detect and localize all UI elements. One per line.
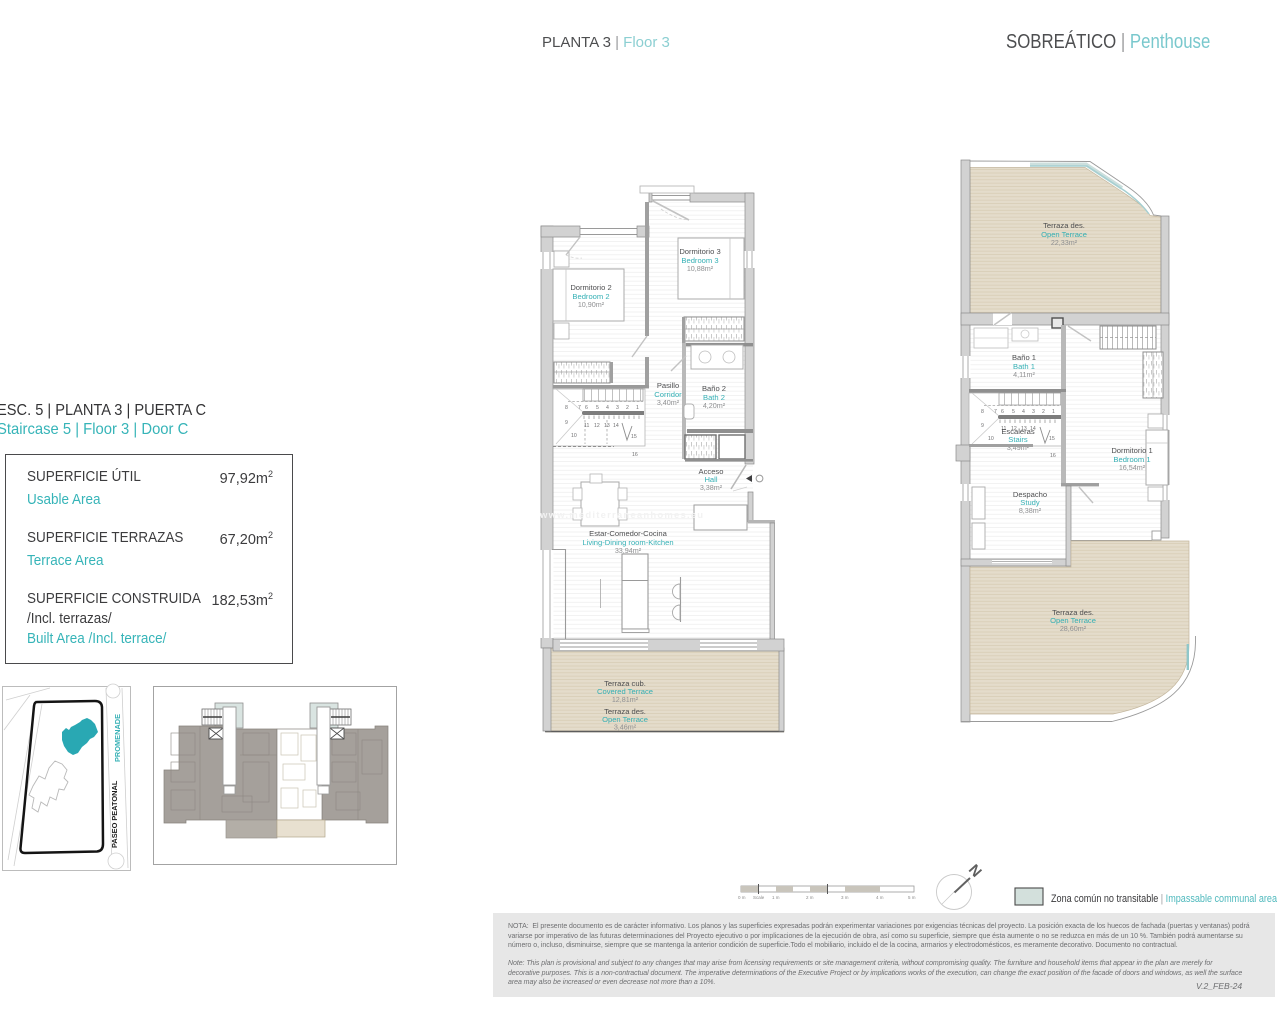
svg-text:3,38m²: 3,38m² bbox=[700, 483, 723, 492]
svg-text:5 m: 5 m bbox=[908, 895, 916, 900]
svg-text:6: 6 bbox=[1001, 409, 1004, 415]
svg-text:12: 12 bbox=[594, 423, 600, 429]
svg-text:15: 15 bbox=[631, 434, 637, 440]
svg-text:10,90m²: 10,90m² bbox=[578, 300, 605, 309]
svg-text:2 m: 2 m bbox=[806, 895, 814, 900]
svg-text:9: 9 bbox=[981, 423, 984, 429]
svg-text:14: 14 bbox=[613, 423, 619, 429]
svg-text:1: 1 bbox=[1052, 409, 1055, 415]
svg-text:PROMENADE: PROMENADE bbox=[113, 714, 122, 762]
svg-text:3 m: 3 m bbox=[841, 895, 849, 900]
svg-text:Baño 1: Baño 1 bbox=[1012, 353, 1036, 362]
svg-text:22,33m²: 22,33m² bbox=[1051, 238, 1078, 247]
svg-text:8,38m²: 8,38m² bbox=[1019, 506, 1042, 515]
svg-text:8: 8 bbox=[981, 409, 984, 415]
svg-text:16: 16 bbox=[632, 452, 638, 458]
svg-text:8: 8 bbox=[565, 405, 568, 411]
svg-text:2: 2 bbox=[1042, 409, 1045, 415]
svg-text:4,11m²: 4,11m² bbox=[1013, 370, 1035, 379]
svg-text:www.mediterraneanhomes.eu: www.mediterraneanhomes.eu bbox=[539, 510, 704, 521]
svg-text:10,88m²: 10,88m² bbox=[687, 264, 714, 273]
svg-text:3: 3 bbox=[616, 405, 619, 411]
svg-text:1 m: 1 m bbox=[772, 895, 780, 900]
svg-text:5: 5 bbox=[596, 405, 599, 411]
svg-text:4: 4 bbox=[606, 405, 609, 411]
svg-text:Scale: Scale bbox=[753, 895, 765, 900]
svg-text:4 m: 4 m bbox=[876, 895, 884, 900]
svg-text:Terraza des.: Terraza des. bbox=[1043, 221, 1085, 230]
svg-text:9: 9 bbox=[565, 420, 568, 426]
svg-text:11: 11 bbox=[584, 423, 589, 429]
svg-text:Estar-Comedor-Cocina: Estar-Comedor-Cocina bbox=[589, 529, 667, 538]
svg-text:16,54m²: 16,54m² bbox=[1119, 463, 1146, 472]
svg-text:Baño 2: Baño 2 bbox=[702, 384, 726, 393]
svg-text:PASEO PEATONAL: PASEO PEATONAL bbox=[110, 780, 119, 848]
svg-text:3,40m²: 3,40m² bbox=[657, 398, 680, 407]
svg-text:Dormitorio 3: Dormitorio 3 bbox=[679, 247, 720, 256]
svg-text:10: 10 bbox=[571, 433, 577, 439]
svg-text:3: 3 bbox=[1032, 409, 1035, 415]
svg-text:6: 6 bbox=[585, 405, 588, 411]
svg-text:1: 1 bbox=[636, 405, 639, 411]
svg-text:Dormitorio 2: Dormitorio 2 bbox=[570, 283, 611, 292]
svg-text:Zona común no transitable | Im: Zona común no transitable | Impassable c… bbox=[1051, 893, 1278, 905]
svg-text:28,60m²: 28,60m² bbox=[1060, 624, 1087, 633]
svg-text:N: N bbox=[965, 861, 985, 880]
svg-text:33,94m²: 33,94m² bbox=[615, 546, 642, 555]
svg-text:5: 5 bbox=[1012, 409, 1015, 415]
svg-text:Dormitorio 1: Dormitorio 1 bbox=[1111, 446, 1152, 455]
svg-text:16: 16 bbox=[1050, 453, 1056, 459]
svg-text:4,20m²: 4,20m² bbox=[703, 401, 726, 410]
svg-text:15: 15 bbox=[1049, 436, 1055, 442]
svg-text:13: 13 bbox=[604, 423, 610, 429]
svg-text:12,81m²: 12,81m² bbox=[612, 695, 639, 704]
svg-text:4: 4 bbox=[1022, 409, 1025, 415]
svg-text:3,46m²: 3,46m² bbox=[614, 723, 637, 732]
svg-text:7: 7 bbox=[578, 405, 581, 411]
svg-text:10: 10 bbox=[988, 436, 994, 442]
svg-text:7: 7 bbox=[994, 409, 997, 415]
svg-text:2: 2 bbox=[626, 405, 629, 411]
svg-text:0 m: 0 m bbox=[738, 895, 746, 900]
svg-text:Pasillo: Pasillo bbox=[657, 381, 679, 390]
